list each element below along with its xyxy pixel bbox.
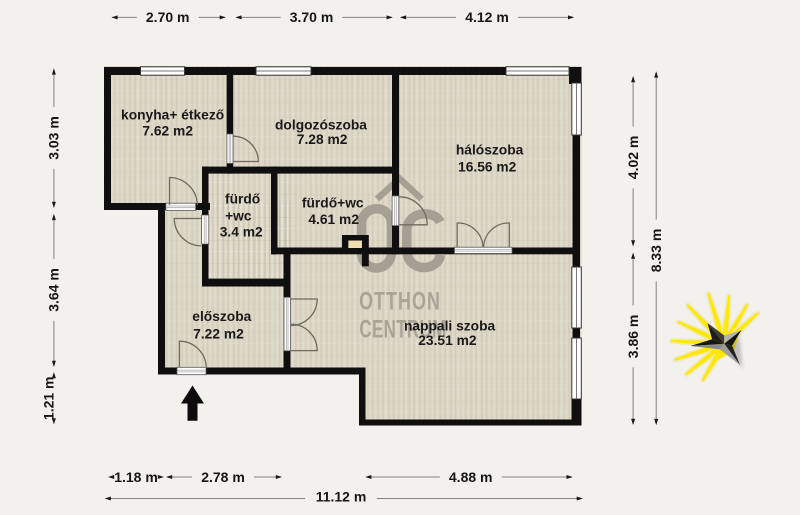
svg-text:előszoba: előszoba <box>192 309 251 324</box>
svg-text:11.12 m: 11.12 m <box>316 488 367 504</box>
svg-text:3.64 m: 3.64 m <box>46 268 62 312</box>
svg-text:2.78 m: 2.78 m <box>201 469 245 485</box>
svg-text:7.22 m2: 7.22 m2 <box>193 326 244 341</box>
svg-text:OTTHON: OTTHON <box>359 286 441 315</box>
svg-text:7.28 m2: 7.28 m2 <box>297 132 348 147</box>
svg-text:1.21 m: 1.21 m <box>40 377 56 421</box>
svg-text:dolgozószoba: dolgozószoba <box>275 117 367 132</box>
svg-text:3.4 m2: 3.4 m2 <box>220 224 263 239</box>
svg-text:4.88 m: 4.88 m <box>449 469 493 485</box>
svg-text:3.86 m: 3.86 m <box>625 315 641 359</box>
svg-text:+wc: +wc <box>225 209 252 224</box>
svg-text:1.18 m: 1.18 m <box>114 469 158 485</box>
svg-text:fürdő+wc: fürdő+wc <box>302 196 364 211</box>
svg-text:7.62 m2: 7.62 m2 <box>142 124 193 139</box>
svg-text:4.12 m: 4.12 m <box>465 9 509 25</box>
svg-text:3.03 m: 3.03 m <box>46 116 62 160</box>
svg-text:2.70 m: 2.70 m <box>146 9 190 25</box>
svg-text:nappali szoba: nappali szoba <box>404 318 496 333</box>
svg-text:4.61 m2: 4.61 m2 <box>308 212 359 227</box>
svg-text:hálószoba: hálószoba <box>456 143 524 158</box>
svg-text:3.70 m: 3.70 m <box>290 9 334 25</box>
svg-text:fürdő: fürdő <box>225 191 260 206</box>
svg-text:8.33 m: 8.33 m <box>648 229 664 273</box>
svg-text:16.56 m2: 16.56 m2 <box>458 159 517 174</box>
svg-text:konyha+ étkező: konyha+ étkező <box>121 107 224 122</box>
svg-text:23.51 m2: 23.51 m2 <box>418 333 477 348</box>
svg-text:4.02 m: 4.02 m <box>625 136 641 180</box>
